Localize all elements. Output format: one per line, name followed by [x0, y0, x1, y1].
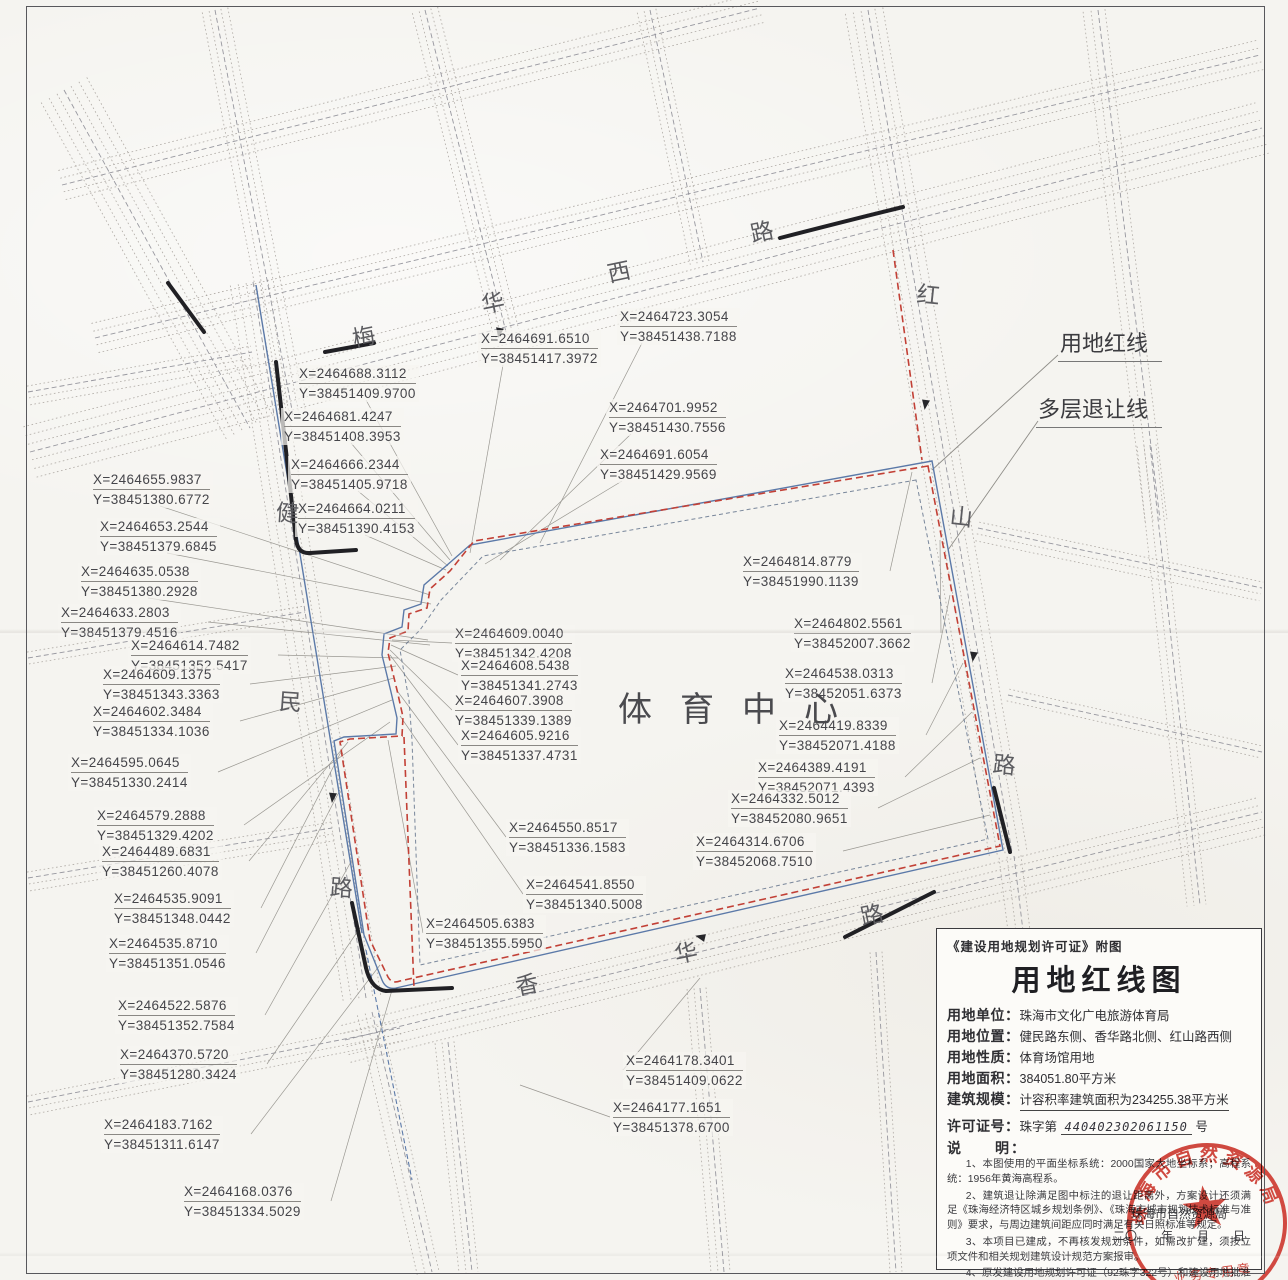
road-line — [442, 1043, 466, 1273]
coordinate-label: X=2464701.9952Y=38451430.7556 — [606, 399, 729, 436]
coordinate-label: X=2464664.0211Y=38451390.4153 — [295, 500, 418, 537]
road-line — [1091, 11, 1153, 521]
coordinate-leader-line — [250, 666, 396, 684]
title-block-field: 用地面积：384051.80平方米 — [947, 1068, 1251, 1089]
road-line — [870, 952, 890, 1272]
coordinate-label: X=2464535.8710Y=38451351.0546 — [106, 935, 229, 972]
permit-number-row: 许可证号：珠字第 440402302061150 号 — [947, 1115, 1251, 1138]
coordinate-y-value: Y=38451378.6700 — [613, 1118, 730, 1136]
road-name-character: 山 — [948, 497, 974, 533]
coordinate-x-value: X=2464370.5720 — [120, 1046, 237, 1065]
coordinate-x-value: X=2464505.6383 — [426, 915, 543, 934]
coordinate-x-value: X=2464605.9216 — [461, 727, 578, 746]
coordinate-x-value: X=2464602.3484 — [93, 703, 210, 722]
coordinate-y-value: Y=38451260.4078 — [102, 862, 219, 880]
road-line — [29, 358, 253, 398]
coordinate-leader-line — [244, 722, 390, 825]
coordinate-x-value: X=2464666.2344 — [291, 456, 408, 475]
coordinate-y-value: Y=38451334.1036 — [93, 722, 210, 740]
coordinate-y-value: Y=38451429.9569 — [600, 465, 717, 483]
permit-number-label: 许可证号： — [947, 1118, 1020, 1134]
coordinate-leader-line — [167, 553, 431, 604]
coordinate-x-value: X=2464389.4191 — [758, 759, 875, 778]
coordinate-label: X=2464723.3054Y=38451438.7188 — [617, 308, 740, 345]
coordinate-x-value: X=2464522.5876 — [118, 997, 235, 1016]
coordinate-y-value: Y=38451438.7188 — [620, 327, 737, 345]
coordinate-x-value: X=2464653.2544 — [100, 518, 217, 537]
coordinate-x-value: X=2464595.0645 — [71, 754, 188, 773]
road-line — [883, 7, 1027, 849]
road-line — [435, 1043, 459, 1273]
coordinate-leader-line — [392, 640, 452, 643]
coordinate-y-value: Y=38451405.9718 — [291, 475, 408, 493]
coordinate-y-value: Y=38451408.3953 — [284, 427, 401, 445]
coordinate-x-value: X=2464609.0040 — [455, 625, 572, 644]
road-line — [876, 952, 896, 1272]
coordinate-y-value: Y=38451409.0622 — [626, 1071, 743, 1089]
field-value: 计容积率建筑面积为234255.38平方米 — [1020, 1089, 1229, 1111]
field-value: 体育场馆用地 — [1020, 1047, 1095, 1068]
coordinate-y-value: Y=38451280.3424 — [120, 1065, 237, 1083]
field-label: 建筑规模： — [947, 1089, 1020, 1111]
road-name-character: 红 — [915, 275, 941, 311]
field-label: 用地单位： — [947, 1005, 1020, 1026]
road-line — [438, 7, 519, 329]
permit-attachment-note: 《建设用地规划许可证》附图 — [947, 936, 1251, 955]
coordinate-label: X=2464178.3401Y=38451409.0622 — [623, 1052, 746, 1089]
coordinate-x-value: X=2464691.6510 — [481, 330, 598, 349]
coordinate-y-value: Y=38452080.9651 — [731, 809, 848, 827]
coordinate-label: X=2464522.5876Y=38451352.7584 — [115, 997, 238, 1034]
road-line — [650, 10, 703, 262]
site-name-label: 体育中心 — [618, 682, 866, 731]
heavy-road-marks — [168, 207, 1010, 991]
coordinate-label: X=2464814.8779Y=38451990.1139 — [740, 553, 862, 590]
road-line — [1083, 12, 1145, 522]
road-line — [1007, 701, 1261, 758]
coordinate-x-value: X=2464681.4247 — [284, 408, 401, 427]
coordinate-label: X=2464681.4247Y=38451408.3953 — [281, 408, 404, 445]
coordinate-x-value: X=2464168.0376 — [184, 1183, 301, 1202]
land-redline-map-sheet: X=2464723.3054Y=38451438.7188X=2464691.6… — [0, 0, 1288, 1280]
coordinate-label: X=2464541.8550Y=38451340.5008 — [523, 876, 646, 913]
coordinate-leader-line — [520, 1085, 610, 1117]
road-line — [209, 11, 287, 416]
road-line — [30, 365, 254, 405]
road-line — [1144, 446, 1194, 906]
coordinate-x-value: X=2464635.0538 — [81, 563, 198, 582]
coordinate-y-value: Y=38452068.7510 — [696, 852, 813, 870]
sheet-title: 用地红线图 — [947, 957, 1251, 999]
road-line — [41, 103, 227, 441]
permit-suffix: 号 — [1195, 1120, 1208, 1134]
title-block-field: 用地位置：健民路东侧、香华路北侧、红山路西侧 — [947, 1026, 1251, 1047]
coordinate-leader-line — [540, 343, 642, 543]
coordinate-label: X=2464579.2888Y=38451329.4202 — [94, 807, 217, 844]
coordinate-label: X=2464688.3112Y=38451409.9700 — [296, 365, 419, 402]
road-line — [372, 1012, 432, 1272]
coordinate-x-value: X=2464535.8710 — [109, 935, 226, 954]
road-line — [28, 352, 252, 392]
coordinate-label: X=2464635.0538Y=38451380.2928 — [78, 563, 201, 600]
road-name-character: 路 — [329, 868, 354, 904]
coordinate-leader-line — [365, 535, 446, 570]
coordinate-label: X=2464370.5720Y=38451280.3424 — [117, 1046, 240, 1083]
title-block-fields: 用地单位：珠海市文化广电旅游体育局用地位置：健民路东侧、香华路北侧、红山路西侧用… — [947, 1005, 1251, 1111]
coordinate-leader-line — [331, 990, 392, 1201]
road-line — [23, 103, 1255, 427]
coordinate-x-value: X=2464664.0211 — [298, 500, 415, 519]
coordinate-leader-line — [878, 758, 980, 808]
title-block-field: 用地性质：体育场馆用地 — [947, 1047, 1251, 1068]
coordinate-x-value: X=2464723.3054 — [620, 308, 737, 327]
coordinate-y-value: Y=38451352.7584 — [118, 1016, 235, 1034]
coordinate-label: X=2464168.0376Y=38451334.5029 — [181, 1183, 304, 1220]
coordinate-y-value: Y=38451417.3972 — [481, 349, 598, 367]
field-value: 珠海市文化广电旅游体育局 — [1020, 1005, 1170, 1026]
seal-bottom-text: 业务专用章 — [1173, 1261, 1254, 1280]
coordinate-x-value: X=2464688.3112 — [299, 365, 416, 384]
coordinate-leader-line — [843, 815, 990, 851]
field-label: 用地位置： — [947, 1026, 1020, 1047]
coordinate-label: X=2464666.2344Y=38451405.9718 — [288, 456, 411, 493]
coordinate-label: X=2464550.8517Y=38451336.1583 — [506, 819, 629, 856]
road-line — [91, 40, 1256, 323]
coordinate-leader-line — [926, 663, 963, 735]
field-label: 用地性质： — [947, 1047, 1020, 1068]
road-name-character: 路 — [991, 745, 1017, 781]
coordinate-x-value: X=2464614.7482 — [131, 637, 248, 656]
coordinate-y-value: Y=38451348.0442 — [114, 909, 231, 927]
coordinate-x-value: X=2464183.7162 — [104, 1116, 220, 1135]
coordinate-y-value: Y=38451380.6772 — [93, 490, 210, 508]
road-line — [1156, 444, 1206, 904]
coordinate-y-value: Y=38451330.2414 — [71, 773, 188, 791]
field-label: 用地面积： — [947, 1068, 1020, 1089]
road-line — [1105, 9, 1167, 519]
coordinate-y-value: Y=38452071.4188 — [779, 736, 896, 754]
coordinate-label: X=2464653.2544Y=38451379.6845 — [97, 518, 220, 555]
road-line — [975, 541, 1259, 601]
road-line — [454, 1041, 478, 1271]
road-line — [656, 9, 709, 261]
coordinate-x-value: X=2464541.8550 — [526, 876, 643, 895]
road-line — [64, 90, 250, 428]
coordinate-y-value: Y=38451355.5950 — [426, 934, 543, 952]
redline-callout-label: 用地红线 — [1058, 326, 1162, 362]
road-line — [1009, 689, 1263, 746]
coordinate-x-value: X=2464489.6831 — [102, 843, 219, 862]
coordinate-label: X=2464609.1375Y=38451343.3363 — [100, 666, 223, 703]
coordinate-x-value: X=2464607.3908 — [455, 692, 572, 711]
coordinate-x-value: X=2464608.5438 — [461, 657, 578, 676]
title-block: 《建设用地规划许可证》附图 用地红线图 用地单位：珠海市文化广电旅游体育局用地位… — [936, 928, 1262, 1270]
coordinate-label: X=2464314.6706Y=38452068.7510 — [693, 833, 816, 870]
road-line — [221, 9, 299, 414]
coordinate-x-value: X=2464609.1375 — [103, 666, 220, 685]
coordinate-label: X=2464608.5438Y=38451341.2743 — [458, 657, 581, 694]
coordinate-label: X=2464177.1651Y=38451378.6700 — [610, 1099, 733, 1136]
coordinate-label: X=2464332.5012Y=38452080.9651 — [728, 790, 851, 827]
coordinate-x-value: X=2464579.2888 — [97, 807, 214, 826]
coordinate-x-value: X=2464701.9952 — [609, 399, 726, 418]
road-line — [93, 48, 1258, 331]
coordinate-label: X=2464183.7162Y=38451311.6147 — [101, 1116, 223, 1153]
road-line — [644, 11, 697, 263]
coordinate-label: X=2464595.0645Y=38451330.2414 — [68, 754, 191, 791]
coordinate-y-value: Y=38452007.3662 — [794, 634, 911, 652]
coordinate-label: X=2464633.2803Y=38451379.4516 — [58, 604, 181, 641]
coordinate-x-value: X=2464177.1651 — [613, 1099, 730, 1118]
coordinate-label: X=2464602.3484Y=38451334.1036 — [90, 703, 213, 740]
coordinate-y-value: Y=38451990.1139 — [743, 572, 859, 590]
coordinate-leader-line — [890, 472, 912, 571]
coordinate-y-value: Y=38451334.5029 — [184, 1202, 301, 1220]
road-line — [448, 1042, 472, 1272]
permit-prefix: 珠字第 — [1020, 1120, 1058, 1134]
road-line — [57, 94, 243, 432]
road-line — [79, 82, 265, 420]
official-seal: 珠海市自然资源局 业务专用章 ★ — [1112, 1128, 1288, 1280]
road-line — [49, 98, 235, 436]
coordinate-label: X=2464655.9837Y=38451380.6772 — [90, 471, 213, 508]
road-line — [977, 534, 1261, 594]
title-block-field: 建筑规模：计容积率建筑面积为234255.38平方米 — [947, 1089, 1251, 1111]
coordinate-leader-line — [251, 965, 380, 1134]
coordinate-y-value: Y=38451430.7556 — [609, 418, 726, 436]
road-name-character: 健 — [275, 493, 300, 529]
road-line — [379, 1010, 439, 1270]
coordinate-leader-line — [905, 712, 972, 777]
road-line — [1008, 695, 1262, 752]
coordinate-label: X=2464535.9091Y=38451348.0442 — [111, 890, 234, 927]
coordinate-x-value: X=2464178.3401 — [626, 1052, 743, 1071]
coordinate-leader-line — [391, 645, 458, 675]
coordinate-leader-line — [390, 655, 458, 745]
road-name-character: 民 — [278, 682, 303, 718]
coordinate-label: X=2464607.3908Y=38451339.1389 — [452, 692, 575, 729]
coordinate-x-value: X=2464535.9091 — [114, 890, 231, 909]
coordinate-x-value: X=2464550.8517 — [509, 819, 626, 838]
coordinate-leader-line — [470, 365, 503, 553]
coordinate-y-value: Y=38451351.0546 — [109, 954, 226, 972]
coordinate-leader-line — [940, 540, 941, 633]
coordinate-y-value: Y=38451337.4731 — [461, 746, 578, 764]
road-line — [882, 952, 902, 1272]
road-line — [66, 23, 764, 200]
road-line — [26, 112, 1258, 436]
coordinate-leader-line — [240, 678, 394, 721]
field-value: 384051.80平方米 — [1020, 1068, 1117, 1089]
coordinate-label: X=2464489.6831Y=38451260.4078 — [99, 843, 222, 880]
road-line — [637, 13, 690, 265]
coordinate-y-value: Y=38451340.5008 — [526, 895, 643, 913]
road-line — [215, 10, 293, 415]
coordinate-x-value: X=2464814.8779 — [743, 553, 859, 572]
coordinate-leader-line — [278, 655, 398, 658]
coordinate-x-value: X=2464802.5561 — [794, 615, 911, 634]
road-line — [978, 528, 1262, 588]
road-line — [58, 0, 756, 170]
coordinate-label: X=2464691.6510Y=38451417.3972 — [478, 330, 601, 367]
coordinate-leader-line — [267, 925, 362, 1064]
road-line — [1137, 446, 1187, 906]
coordinate-x-value: X=2464332.5012 — [731, 790, 848, 809]
coordinate-y-value: Y=38451380.2928 — [81, 582, 198, 600]
road-line — [71, 86, 257, 424]
coordinate-x-value: X=2464314.6706 — [696, 833, 813, 852]
coordinate-leader-line — [256, 790, 340, 953]
coordinate-y-value: Y=38451311.6147 — [104, 1135, 220, 1153]
setback-callout-label: 多层退让线 — [1036, 392, 1162, 428]
coordinate-y-value: Y=38451379.6845 — [100, 537, 217, 555]
coordinate-x-value: X=2464691.6054 — [600, 446, 717, 465]
coordinate-y-value: Y=38451390.4153 — [298, 519, 415, 537]
title-block-field: 用地单位：珠海市文化广电旅游体育局 — [947, 1005, 1251, 1026]
road-line — [1150, 445, 1200, 905]
permit-number-value: 440402302061150 — [1061, 1120, 1192, 1135]
coordinate-y-value: Y=38451329.4202 — [97, 826, 214, 844]
coordinate-y-value: Y=38451336.1583 — [509, 838, 626, 856]
coordinate-y-value: Y=38451343.3363 — [103, 685, 220, 703]
coordinate-label: X=2464691.6054Y=38451429.9569 — [597, 446, 720, 483]
coordinate-x-value: X=2464655.9837 — [93, 471, 210, 490]
road-line — [979, 522, 1263, 582]
coordinate-label: X=2464605.9216Y=38451337.4731 — [458, 727, 581, 764]
coordinate-label: X=2464505.6383Y=38451355.5950 — [423, 915, 546, 952]
coordinate-x-value: X=2464633.2803 — [61, 604, 178, 623]
coordinate-label: X=2464802.5561Y=38452007.3662 — [791, 615, 914, 652]
field-value: 健民路东侧、香华路北侧、红山路西侧 — [1020, 1026, 1233, 1047]
coordinate-y-value: Y=38451409.9700 — [299, 384, 416, 402]
